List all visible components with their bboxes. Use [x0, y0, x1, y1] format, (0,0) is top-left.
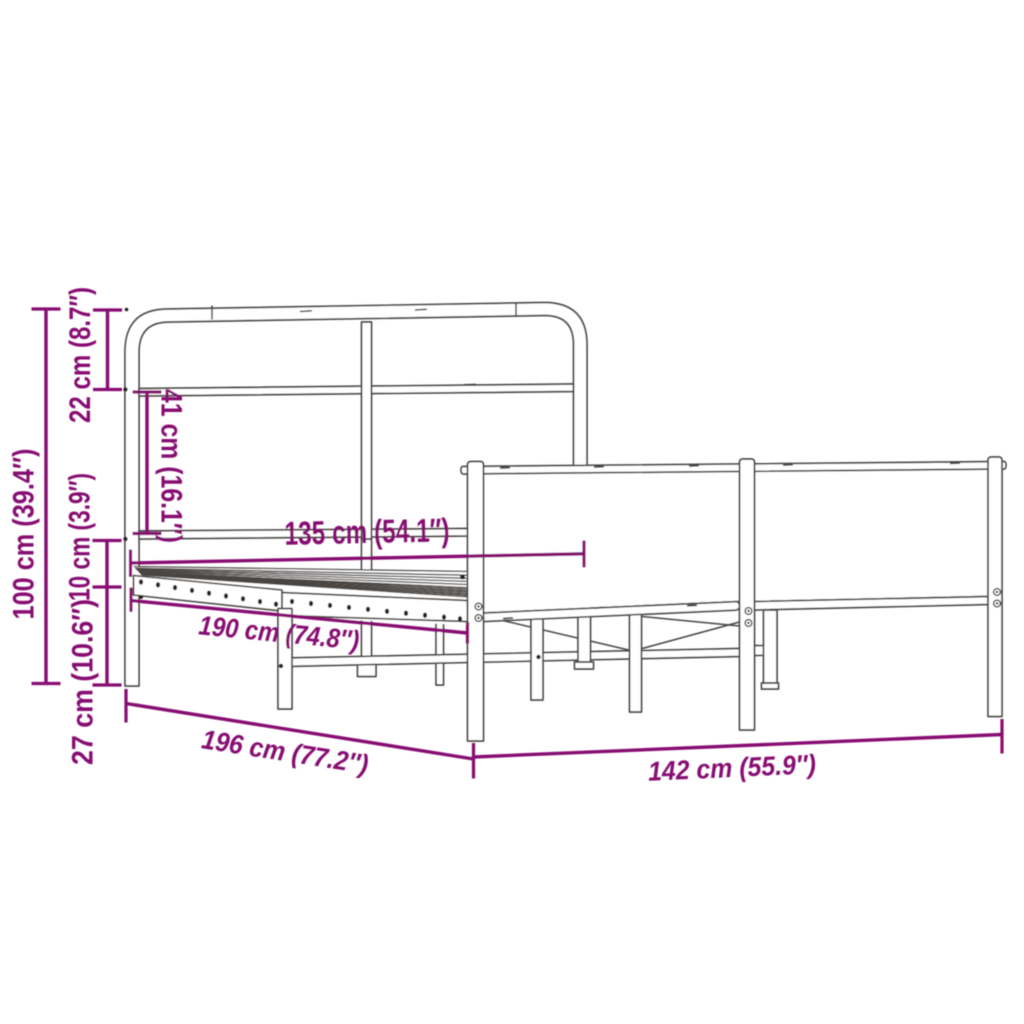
svg-text:100 cm (39.4″): 100 cm (39.4″)	[8, 449, 41, 620]
svg-text:27 cm (10.6″): 27 cm (10.6″)	[67, 599, 100, 765]
svg-text:135 cm (54.1″): 135 cm (54.1″)	[284, 511, 450, 551]
svg-text:22 cm (8.7″): 22 cm (8.7″)	[64, 287, 97, 423]
svg-text:41 cm (16.1″): 41 cm (16.1″)	[155, 389, 188, 543]
svg-text:10 cm (3.9″): 10 cm (3.9″)	[64, 473, 97, 601]
